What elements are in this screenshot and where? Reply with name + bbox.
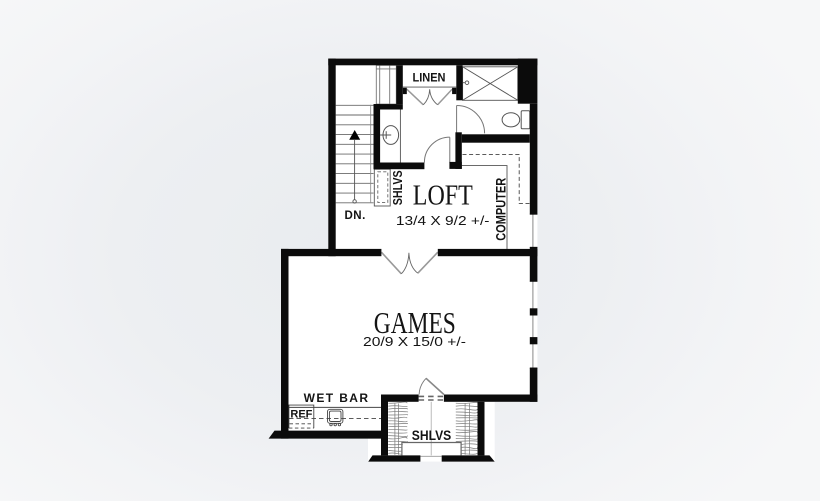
svg-text:LOFT: LOFT <box>413 181 473 212</box>
svg-text:SHLVS: SHLVS <box>390 170 405 205</box>
svg-text:COMPUTER: COMPUTER <box>493 178 509 241</box>
svg-text:13/4 X 9/2 +/-: 13/4 X 9/2 +/- <box>396 213 490 228</box>
svg-text:LINEN: LINEN <box>413 71 446 85</box>
svg-text:WET BAR: WET BAR <box>304 391 370 405</box>
svg-text:20/9 X 15/0 +/-: 20/9 X 15/0 +/- <box>363 334 466 349</box>
svg-text:DN.: DN. <box>345 210 366 222</box>
svg-text:REF: REF <box>290 408 312 420</box>
svg-text:SHLVS: SHLVS <box>412 428 452 443</box>
